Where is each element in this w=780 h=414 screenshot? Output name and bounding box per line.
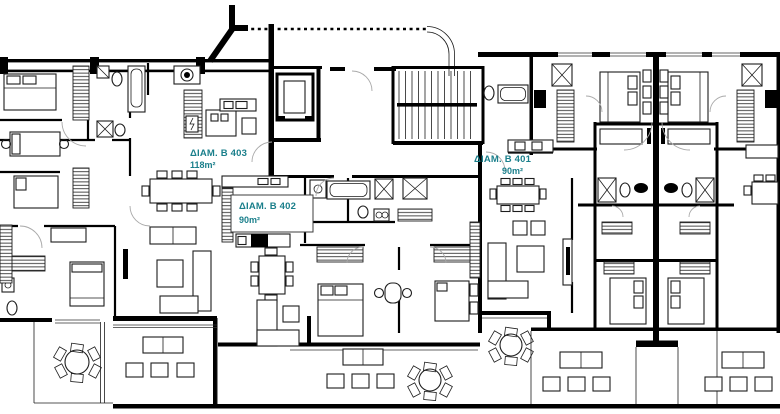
kitchen-icons xyxy=(174,66,256,138)
wardrobe-icon xyxy=(7,256,45,271)
coffee-table-icon xyxy=(157,260,183,287)
outdoor-sofa-icon xyxy=(705,352,772,391)
vanity-icon xyxy=(680,222,710,234)
tall-cabinet-icon xyxy=(0,225,12,283)
round-table-icon xyxy=(408,362,453,400)
toilet-icon xyxy=(620,183,630,197)
bathroom-icons xyxy=(484,85,528,103)
floor-plan-drawing: ΔΙΑΜ. Β 403 118m² ΔΙΑΜ. Β 402 90m² ΔΙΑΜ.… xyxy=(0,0,780,414)
kitchen-range-icon xyxy=(765,90,777,108)
bed-icon xyxy=(660,70,708,122)
sofa-icon xyxy=(488,239,572,299)
bathroom-icons xyxy=(97,66,145,137)
bed-icon xyxy=(435,281,469,321)
wardrobe-icon xyxy=(737,90,754,142)
outdoor-sofa-icon xyxy=(327,349,394,388)
closet-icon xyxy=(51,228,86,242)
bedroom-1 xyxy=(317,247,363,336)
closet-icon xyxy=(398,209,432,221)
sofa-icon xyxy=(668,129,710,144)
sofa-icon xyxy=(746,145,778,158)
round-table-icon xyxy=(54,343,102,382)
shaft-icon xyxy=(552,64,572,86)
bed-icon xyxy=(668,278,704,324)
dining-table-icon xyxy=(142,171,220,211)
coffee-table-icon xyxy=(283,306,299,322)
wardrobe-icon xyxy=(680,262,710,274)
apartment-label-b403: ΔΙΑΜ. Β 403 xyxy=(190,148,247,159)
toilet-icon xyxy=(7,301,17,315)
round-table-icon xyxy=(489,327,534,365)
dining-table-icon xyxy=(744,175,778,204)
wardrobe-icon xyxy=(317,247,363,262)
sink-icon xyxy=(664,183,678,193)
apartment-b403 xyxy=(0,66,256,315)
dining-table-icon xyxy=(251,248,293,302)
wardrobe-icon xyxy=(73,168,89,208)
bed-icon xyxy=(14,176,58,208)
dining-table-icon xyxy=(490,179,546,212)
toilet-icon xyxy=(484,86,494,100)
sink-icon xyxy=(634,183,648,193)
bed-icon xyxy=(610,278,646,324)
wardrobe-icon xyxy=(604,262,634,274)
desk-icon xyxy=(375,283,412,303)
elevator-icon xyxy=(277,74,313,121)
bed-icon xyxy=(70,262,104,306)
apartment-area-b401: 90m² xyxy=(502,166,523,176)
toilet-icon xyxy=(358,206,368,218)
bedroom-lower-left xyxy=(2,228,104,315)
ottoman-icon xyxy=(513,221,527,235)
tv-icon xyxy=(307,316,311,344)
apartment-label-b401: ΔΙΑΜ. Β 401 xyxy=(474,154,532,165)
stairs-icon xyxy=(397,71,477,139)
balconies xyxy=(54,327,772,400)
wardrobe-icon xyxy=(73,66,89,120)
sofa-icon xyxy=(257,300,311,346)
bed-icon xyxy=(318,284,363,336)
coffee-table-icon xyxy=(517,246,544,272)
vanity-icon xyxy=(602,222,632,234)
structural-walls xyxy=(0,5,780,409)
ottoman-icon xyxy=(531,221,545,235)
apartment-label-b402: ΔΙΑΜ. Β 402 xyxy=(239,201,296,212)
bed-icon xyxy=(600,70,651,122)
sofa-icon xyxy=(123,227,211,313)
bed-icon xyxy=(4,74,56,110)
outdoor-sofa-icon xyxy=(126,337,194,377)
tv-icon xyxy=(123,249,128,279)
kitchen-range-icon xyxy=(534,90,546,108)
apartment-area-b403: 118m² xyxy=(190,160,216,170)
wardrobe-icon xyxy=(557,90,574,142)
shaft-icon xyxy=(742,64,762,86)
toilet-icon xyxy=(682,183,692,197)
apartment-area-b402: 90m² xyxy=(239,215,260,225)
tv-icon xyxy=(566,247,570,275)
floor-plan-svg: ΔΙΑΜ. Β 403 118m² ΔΙΑΜ. Β 402 90m² ΔΙΑΜ.… xyxy=(0,0,780,414)
sofa-icon xyxy=(600,129,642,144)
outdoor-sofa-icon xyxy=(543,352,610,391)
bed-icon xyxy=(2,132,69,156)
